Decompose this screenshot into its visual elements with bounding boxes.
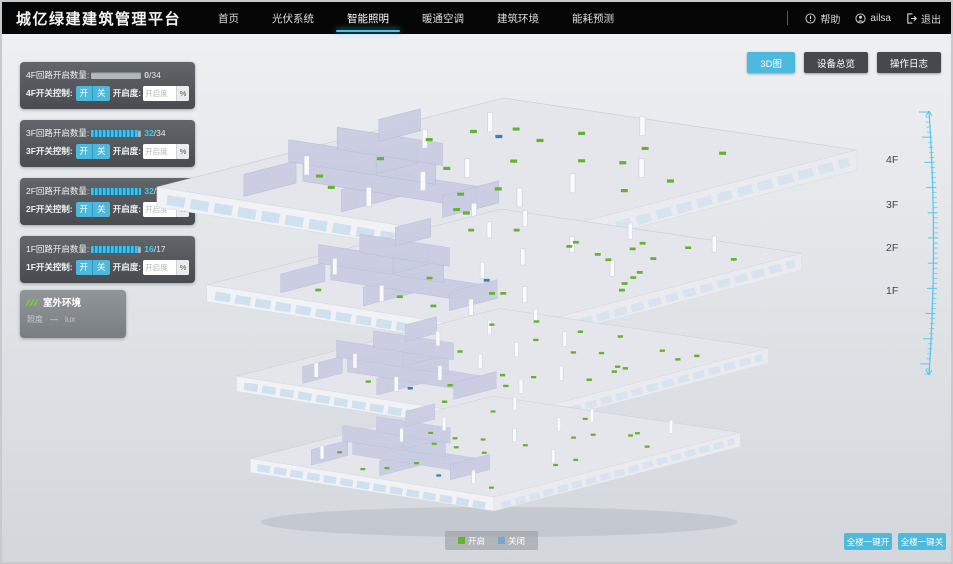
operation-log-button[interactable]: 操作日志 [877,52,941,73]
floor-label-4f[interactable]: 4F [886,154,898,166]
legend-on-item: 开启 [458,535,485,547]
floor-off-button[interactable]: 关 [93,144,110,159]
user-area: 帮助 ailsa 退出 [787,11,941,26]
legend-off-item: 关闭 [498,535,525,547]
nav-item-energy-forecast[interactable]: 能耗预测 [569,2,617,36]
view-3d-button[interactable]: 3D图 [747,52,795,73]
circuit-progress-bar [91,130,141,137]
nav-item-smart-lighting[interactable]: 智能照明 [344,2,392,36]
view-toolbar: 3D图 设备总览 操作日志 [747,52,941,73]
circuit-progress-bar [91,188,141,195]
vertical-scale-ruler [905,106,947,380]
floor-label-1f[interactable]: 1F [886,285,898,297]
circuit-count-label: 1F回路开启数量: [26,243,89,255]
light-status-legend: 开启 关闭 [445,531,538,550]
circuit-count-label: 3F回路开启数量: [26,127,89,139]
illuminance-value: — [50,315,58,324]
user-icon [855,13,866,24]
floor-on-button[interactable]: 开 [76,202,93,217]
switch-control-label: 1F开关控制: [26,261,73,273]
floor-on-button[interactable]: 开 [76,144,93,159]
dim-label: 开启度: [113,145,141,157]
on-off-switch: 开 关 [76,86,110,101]
logout-icon [906,13,917,24]
on-off-switch: 开 关 [76,260,110,275]
nav-item-building-env[interactable]: 建筑环境 [494,2,542,36]
floor-on-button[interactable]: 开 [76,260,93,275]
all-on-button[interactable]: 全楼一键开 [844,533,892,550]
on-off-switch: 开 关 [76,144,110,159]
illuminance-label: 照度 [27,314,43,325]
dim-label: 开启度: [113,261,141,273]
floor-off-button[interactable]: 关 [93,260,110,275]
nav-item-hvac[interactable]: 暖通空调 [419,2,467,36]
outdoor-env-icon [27,299,39,306]
main-menu: 首页 光伏系统 智能照明 暖通空调 建筑环境 能耗预测 [215,2,617,36]
legend-off-swatch [498,537,505,544]
nav-item-pv-system[interactable]: 光伏系统 [269,2,317,36]
circuit-progress-bar [91,72,141,79]
switch-control-label: 2F开关控制: [26,203,73,215]
dim-label: 开启度: [113,87,141,99]
floor-off-button[interactable]: 关 [93,86,110,101]
nav-item-home[interactable]: 首页 [215,2,242,36]
outdoor-env-panel: 室外环境 照度 — lux [20,290,126,338]
nav-divider [787,11,788,25]
top-nav-bar: 城亿绿建建筑管理平台 首页 光伏系统 智能照明 暖通空调 建筑环境 能耗预测 帮… [2,2,951,34]
page-title: 城亿绿建建筑管理平台 [16,8,181,29]
circuit-progress-bar [91,246,141,253]
switch-control-label: 4F开关控制: [26,87,73,99]
floor-on-button[interactable]: 开 [76,86,93,101]
app-window: 城亿绿建建筑管理平台 首页 光伏系统 智能照明 暖通空调 建筑环境 能耗预测 帮… [2,2,951,562]
help-button[interactable]: 帮助 [805,11,840,26]
switch-control-label: 3F开关控制: [26,145,73,157]
logout-button[interactable]: 退出 [906,11,941,26]
help-icon [805,13,816,24]
on-off-switch: 开 关 [76,202,110,217]
floor-off-button[interactable]: 关 [93,202,110,217]
legend-on-swatch [458,537,465,544]
user-menu[interactable]: ailsa [855,13,891,24]
floor-label-2f[interactable]: 2F [886,242,898,254]
device-overview-button[interactable]: 设备总览 [804,52,868,73]
bulk-controls: 全楼一键开 全楼一键关 [844,533,946,550]
circuit-count-label: 2F回路开启数量: [26,185,89,197]
outdoor-env-title: 室外环境 [43,295,81,309]
building-3d-model[interactable] [147,92,887,547]
all-off-button[interactable]: 全楼一键关 [898,533,946,550]
username: ailsa [870,13,891,24]
circuit-count-label: 4F回路开启数量: [26,69,89,81]
floor-label-3f[interactable]: 3F [886,199,898,211]
total-count: /34 [149,70,161,80]
dim-label: 开启度: [113,203,141,215]
illuminance-unit: lux [65,315,75,324]
